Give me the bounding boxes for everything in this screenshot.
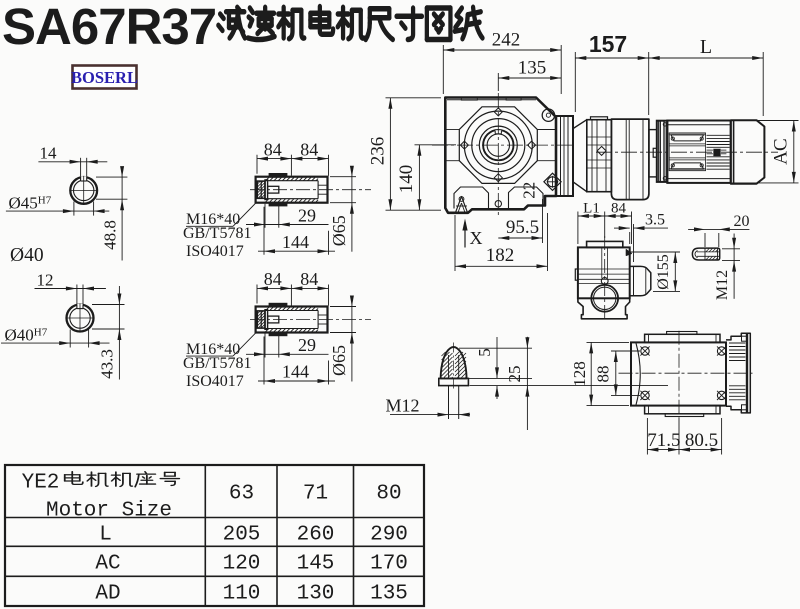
svg-text:Ø65: Ø65 bbox=[329, 345, 349, 376]
svg-text:80: 80 bbox=[376, 483, 401, 506]
svg-text:20: 20 bbox=[734, 213, 750, 230]
svg-text:SA67R37: SA67R37 bbox=[2, 0, 216, 55]
svg-text:L: L bbox=[99, 524, 112, 547]
svg-text:88: 88 bbox=[594, 366, 613, 383]
svg-text:95.5: 95.5 bbox=[506, 217, 539, 238]
svg-text:110: 110 bbox=[223, 583, 261, 606]
svg-text:Ø155: Ø155 bbox=[655, 254, 672, 290]
svg-text:29: 29 bbox=[298, 335, 316, 355]
svg-text:M12: M12 bbox=[714, 270, 731, 300]
svg-text:AD: AD bbox=[95, 583, 120, 606]
svg-text:157: 157 bbox=[589, 31, 627, 57]
svg-text:Ø65: Ø65 bbox=[329, 215, 349, 246]
svg-text:L: L bbox=[700, 36, 712, 58]
svg-text:L1: L1 bbox=[583, 201, 600, 217]
svg-text:GB/T5781: GB/T5781 bbox=[183, 225, 251, 242]
svg-text:43.3: 43.3 bbox=[98, 349, 117, 379]
svg-text:290: 290 bbox=[370, 524, 408, 547]
svg-text:5: 5 bbox=[475, 348, 494, 357]
svg-text:84: 84 bbox=[264, 139, 282, 159]
svg-text:X: X bbox=[470, 228, 483, 248]
svg-text:71.5: 71.5 bbox=[647, 430, 680, 451]
svg-text:25: 25 bbox=[505, 366, 524, 383]
svg-text:84: 84 bbox=[300, 139, 318, 159]
svg-text:84: 84 bbox=[300, 269, 318, 289]
svg-text:M12: M12 bbox=[385, 396, 419, 416]
svg-text:AC: AC bbox=[771, 138, 792, 164]
svg-text:3.5: 3.5 bbox=[645, 212, 665, 229]
svg-text:145: 145 bbox=[297, 553, 335, 576]
svg-text:14: 14 bbox=[40, 144, 58, 163]
svg-text:140: 140 bbox=[396, 165, 417, 194]
svg-text:Motor Size: Motor Size bbox=[46, 500, 172, 523]
svg-text:182: 182 bbox=[486, 245, 515, 266]
svg-text:29: 29 bbox=[298, 205, 316, 225]
svg-text:AC: AC bbox=[95, 553, 120, 576]
svg-text:205: 205 bbox=[223, 524, 261, 547]
svg-text:12: 12 bbox=[37, 270, 54, 289]
svg-text:ISO4017: ISO4017 bbox=[186, 243, 244, 260]
svg-text:84: 84 bbox=[611, 201, 627, 217]
svg-text:135: 135 bbox=[518, 58, 547, 79]
svg-text:236: 236 bbox=[367, 137, 388, 166]
svg-text:63: 63 bbox=[229, 483, 254, 506]
svg-text:48.8: 48.8 bbox=[100, 220, 119, 250]
svg-text:242: 242 bbox=[492, 30, 521, 51]
svg-text:144: 144 bbox=[282, 232, 309, 252]
svg-text:128: 128 bbox=[570, 361, 589, 387]
svg-text:130: 130 bbox=[297, 583, 335, 606]
svg-text:ISO4017: ISO4017 bbox=[186, 373, 244, 390]
svg-text:71: 71 bbox=[303, 483, 328, 506]
svg-text:170: 170 bbox=[370, 553, 408, 576]
svg-text:BOSERL: BOSERL bbox=[71, 68, 138, 87]
svg-text:260: 260 bbox=[297, 524, 335, 547]
svg-text:GB/T5781: GB/T5781 bbox=[183, 355, 251, 372]
svg-text:144: 144 bbox=[282, 362, 309, 382]
svg-text:120: 120 bbox=[223, 553, 261, 576]
svg-text:YE2: YE2 bbox=[22, 472, 60, 495]
svg-text:Ø40: Ø40 bbox=[10, 245, 44, 266]
svg-text:22: 22 bbox=[520, 182, 539, 199]
svg-text:80.5: 80.5 bbox=[685, 430, 718, 451]
svg-text:135: 135 bbox=[370, 583, 408, 606]
svg-text:84: 84 bbox=[264, 269, 282, 289]
